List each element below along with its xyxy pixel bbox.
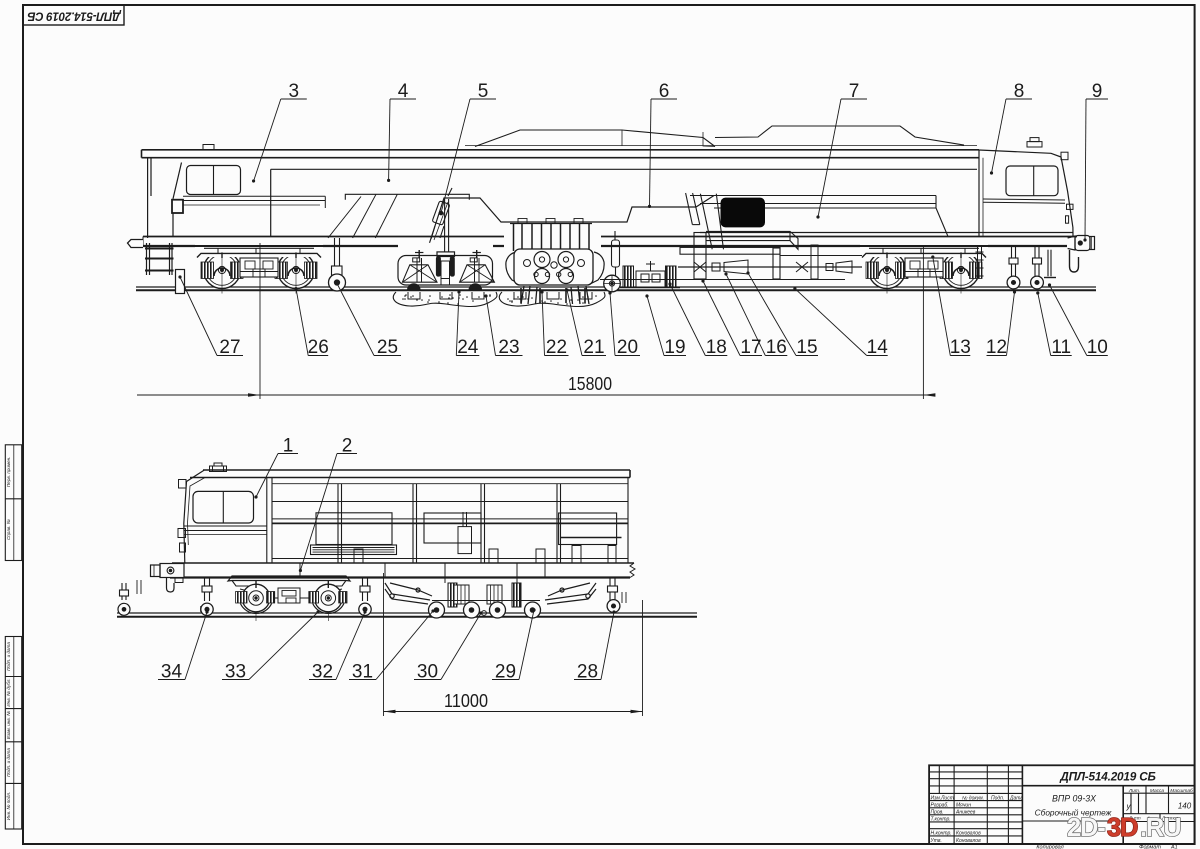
svg-text:3D: 3D [1107, 814, 1138, 842]
svg-text:Перв. примен.: Перв. примен. [6, 457, 11, 488]
svg-text:23: 23 [498, 337, 519, 358]
svg-text:15800: 15800 [568, 374, 612, 394]
svg-text:Подп. и дата: Подп. и дата [6, 748, 11, 777]
svg-text:Взам. инв. №: Взам. инв. № [6, 711, 11, 739]
svg-text:Справ. №: Справ. № [6, 519, 11, 540]
svg-text:24: 24 [457, 337, 479, 358]
svg-text:11000: 11000 [444, 691, 488, 711]
svg-text:Лит.: Лит. [1128, 788, 1140, 794]
svg-text:19: 19 [664, 337, 685, 358]
svg-text:26: 26 [308, 337, 329, 358]
svg-text:Масса: Масса [1150, 788, 1165, 794]
svg-text:ВПР 09-3Х: ВПР 09-3Х [1052, 794, 1097, 804]
svg-text:15: 15 [796, 337, 817, 358]
svg-text:А1: А1 [1170, 845, 1178, 849]
svg-text:11: 11 [1051, 337, 1071, 358]
svg-text:140: 140 [1178, 802, 1192, 811]
svg-text:Изм.: Изм. [931, 796, 942, 802]
svg-text:12: 12 [986, 337, 1007, 358]
svg-text:10: 10 [1087, 337, 1108, 358]
svg-text:16: 16 [766, 337, 787, 358]
svg-text:21: 21 [583, 337, 604, 358]
svg-text:Пров.: Пров. [931, 810, 944, 816]
svg-text:Коновалов: Коновалов [956, 831, 981, 837]
svg-text:14: 14 [867, 337, 889, 358]
svg-text:27: 27 [219, 337, 240, 358]
svg-text:Н.контр.: Н.контр. [931, 831, 952, 837]
svg-text:Дата: Дата [1009, 796, 1023, 802]
svg-text:Мячин: Мячин [956, 803, 971, 809]
svg-text:2D-: 2D- [1067, 814, 1105, 842]
svg-text:Аникеев: Аникеев [955, 810, 976, 816]
svg-text:Подп.: Подп. [991, 796, 1004, 802]
svg-text:Формат: Формат [1139, 845, 1161, 849]
svg-text:Инв. № дубл.: Инв. № дубл. [6, 678, 11, 706]
svg-text:ДПЛ-514.2019 СБ: ДПЛ-514.2019 СБ [27, 9, 121, 21]
svg-text:Подп. и дата: Подп. и дата [6, 642, 11, 671]
svg-text:Т.контр.: Т.контр. [931, 817, 951, 823]
svg-text:Разраб.: Разраб. [931, 803, 949, 809]
svg-text:25: 25 [377, 337, 398, 358]
svg-text:17: 17 [740, 337, 761, 358]
svg-text:Утв.: Утв. [931, 838, 942, 844]
svg-text:22: 22 [546, 337, 567, 358]
svg-text:№ докум.: № докум. [962, 796, 984, 802]
svg-text:Инв. № подл.: Инв. № подл. [6, 792, 11, 821]
svg-text:Лист: Лист [940, 796, 954, 802]
svg-text:Масштаб: Масштаб [1170, 788, 1193, 794]
svg-text:ДПЛ-514.2019 СБ: ДПЛ-514.2019 СБ [1059, 770, 1155, 784]
svg-text:Коновалов: Коновалов [956, 838, 981, 844]
svg-text:Копировал: Копировал [1036, 845, 1063, 849]
svg-text:18: 18 [706, 337, 727, 358]
svg-text:.RU: .RU [1140, 814, 1180, 842]
svg-text:13: 13 [950, 337, 971, 358]
svg-text:20: 20 [617, 337, 638, 358]
